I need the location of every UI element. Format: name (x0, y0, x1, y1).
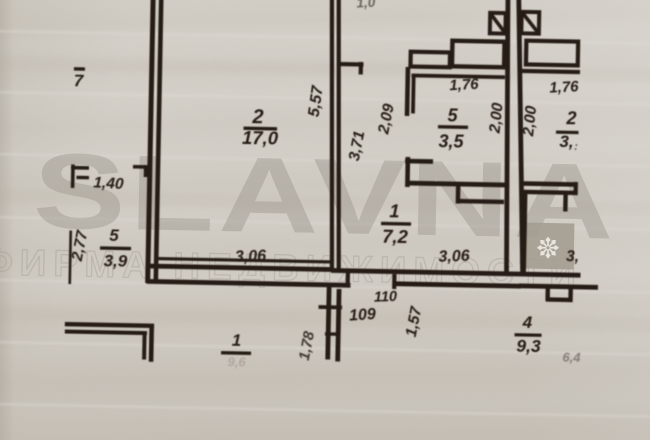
svg-text:7,2: 7,2 (382, 226, 409, 248)
svg-text:5: 5 (109, 226, 119, 245)
svg-text:1,76: 1,76 (449, 76, 480, 94)
svg-text:9,6: 9,6 (227, 354, 246, 369)
svg-text:5: 5 (447, 105, 458, 125)
svg-text:1: 1 (389, 201, 399, 221)
svg-text:6,4: 6,4 (562, 350, 581, 365)
svg-text:2,00: 2,00 (520, 105, 540, 138)
svg-text:2,00: 2,00 (486, 102, 506, 135)
svg-text:3,06: 3,06 (235, 248, 267, 266)
svg-text:3,: 3, (566, 248, 579, 265)
svg-text:2: 2 (251, 106, 264, 128)
svg-text:3,06: 3,06 (438, 248, 470, 266)
svg-text:110: 110 (374, 289, 398, 306)
svg-text:1: 1 (232, 331, 242, 350)
svg-text:109: 109 (349, 306, 377, 325)
svg-text::: : (574, 141, 578, 153)
svg-text:1,0: 1,0 (356, 0, 376, 11)
svg-text:17,0: 17,0 (242, 127, 279, 149)
svg-text:1,76: 1,76 (549, 78, 580, 96)
svg-text:4: 4 (522, 313, 533, 332)
svg-text:3,9: 3,9 (103, 251, 128, 270)
svg-text:3,5: 3,5 (438, 131, 464, 151)
svg-text:2: 2 (565, 108, 576, 128)
svg-text:1,40: 1,40 (93, 174, 124, 193)
svg-text:3,: 3, (559, 132, 574, 151)
svg-text:9,3: 9,3 (516, 336, 541, 356)
